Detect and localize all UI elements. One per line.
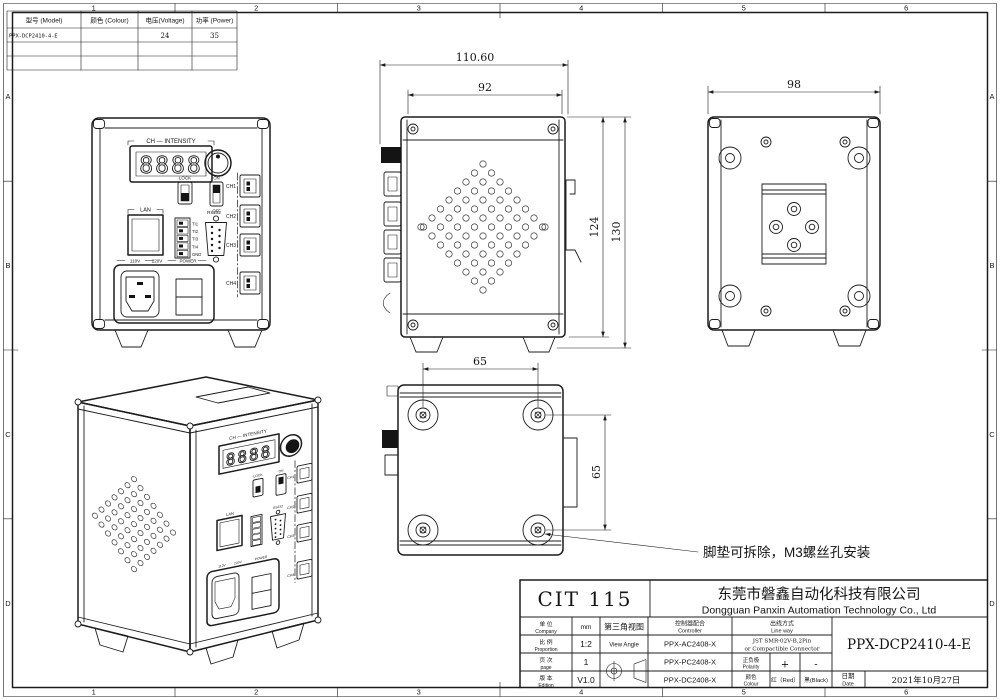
drawing-code: CIT 115 bbox=[537, 587, 632, 611]
colour-label-en: Colour bbox=[744, 682, 759, 688]
dimension-65-y: 65 bbox=[546, 415, 611, 530]
page-label-cn: 页 次 bbox=[539, 656, 552, 664]
edition-label-cn: 版 本 bbox=[539, 674, 552, 682]
zone-label: 6 bbox=[904, 4, 908, 13]
intensity-display: CH — INTENSITY 8888 bbox=[128, 139, 214, 182]
iso-ch3-label: CH3 bbox=[287, 534, 294, 539]
terminal-block: TI1 TI2 TI3 TI4 GND bbox=[175, 218, 201, 258]
lineway-label-cn: 出线方式 bbox=[770, 620, 794, 628]
rs232-label: RS232 bbox=[207, 210, 221, 215]
dim-130-label: 130 bbox=[610, 222, 623, 243]
controller-label-en: Controller bbox=[678, 629, 702, 635]
page-label-en: page bbox=[540, 665, 551, 671]
company-name-en: Dongguan Panxin Automation Technology Co… bbox=[702, 605, 937, 617]
side-view: 92 110.60 124 130 bbox=[380, 51, 631, 352]
iso-ch1-label: CH1 bbox=[287, 475, 294, 480]
title-block: CIT 115 东莞市磐鑫自动化科技有限公司 Dongguan Panxin A… bbox=[520, 580, 988, 689]
zone-label: 3 bbox=[417, 688, 421, 697]
zone-label: A bbox=[5, 92, 10, 101]
side-connectors bbox=[381, 147, 401, 313]
controller-model: PPX-PC2408-X bbox=[664, 658, 716, 667]
iso-display-digits: 8888 bbox=[226, 441, 273, 469]
ch2-label: CH2 bbox=[226, 214, 236, 220]
zone-label: 2 bbox=[254, 4, 258, 13]
zone-label: A bbox=[989, 92, 994, 101]
power-switch bbox=[176, 279, 202, 315]
terminal-label: TI4 bbox=[192, 244, 199, 249]
view-angle-cn: 第三角视图 bbox=[604, 622, 644, 632]
dim-65x-label: 65 bbox=[473, 355, 487, 368]
scale-label-cn: 比 例 bbox=[539, 638, 552, 646]
iso-display-title: CH — INTENSITY bbox=[229, 428, 267, 441]
date-label-cn: 日期 bbox=[842, 672, 856, 680]
power-connector-side bbox=[381, 147, 401, 163]
dim-110-label: 110.60 bbox=[456, 51, 495, 64]
polarity-plus: + bbox=[781, 660, 789, 671]
zone-label: 4 bbox=[579, 688, 583, 697]
edition-value: V1.0 bbox=[577, 675, 595, 685]
spec-value-model: PPX-DCP2410-4-E bbox=[9, 34, 58, 40]
polarity-label-en: Polarity bbox=[743, 665, 760, 671]
view-angle-en: View Angle bbox=[609, 643, 639, 649]
dimension-92: 92 bbox=[408, 81, 562, 114]
colour-label-cn: 颜色 bbox=[745, 673, 757, 681]
display-title: CH — INTENSITY bbox=[146, 139, 195, 145]
spec-table: 型号 (Model) 颜色 (Colour) 电压(Voltage) 功率 (P… bbox=[7, 11, 237, 70]
din-mount-plate bbox=[762, 184, 826, 264]
spec-value-voltage: 24 bbox=[161, 32, 170, 40]
channel-connectors: CH1 CH2 CH3 CH4 bbox=[226, 175, 260, 294]
lan-port: LAN bbox=[128, 208, 163, 256]
iso-lan-label: LAN bbox=[226, 511, 234, 518]
lock-switch: LOCK bbox=[178, 176, 192, 205]
colour-red: 红（Red） bbox=[771, 676, 799, 684]
lan-label: LAN bbox=[140, 208, 151, 214]
dim-124-label: 124 bbox=[588, 217, 601, 238]
lineway-value-1: JST SMR-02V-B,2Pin bbox=[752, 639, 812, 645]
dimension-65-x: 65 bbox=[423, 355, 538, 407]
zone-label: 5 bbox=[742, 688, 746, 697]
iso-ch2-label: CH2 bbox=[287, 505, 294, 510]
power-connector-bottom bbox=[382, 430, 398, 448]
zone-label: B bbox=[989, 261, 994, 270]
zone-label: 1 bbox=[92, 688, 96, 697]
v220-label: 220V bbox=[152, 259, 163, 264]
rs232-port: RS232 bbox=[206, 210, 227, 262]
iso-on-label: ON bbox=[279, 468, 284, 473]
lineway-value-2: or Compactible Connector bbox=[745, 647, 820, 653]
controller-model: PPX-AC2408-X bbox=[664, 640, 716, 649]
zone-label: 6 bbox=[904, 688, 908, 697]
engineering-drawing: 1 2 3 4 5 6 1 2 3 4 5 6 A B C D A B C D … bbox=[0, 0, 1000, 700]
iso-ch4-label: CH4 bbox=[287, 573, 294, 578]
polarity-minus: - bbox=[814, 660, 817, 671]
page-value: 1 bbox=[584, 657, 589, 667]
polarity-label-cn: 正负极 bbox=[743, 656, 760, 664]
scale-label-en: Proportion bbox=[534, 647, 557, 653]
terminal-label: TI2 bbox=[192, 229, 199, 234]
controller-label-cn: 控制器配合 bbox=[675, 620, 705, 628]
edition-label-en: Edition bbox=[538, 683, 554, 689]
iso-rs232-label: RS232 bbox=[273, 504, 283, 510]
spec-header-voltage: 电压(Voltage) bbox=[145, 16, 184, 25]
spec-header-model: 型号 (Model) bbox=[26, 16, 63, 25]
dim-92-label: 92 bbox=[478, 81, 492, 94]
front-view: CH — INTENSITY 8888 LOCK ON OFF CH1 CH2 … bbox=[92, 118, 270, 347]
terminal-label: TI3 bbox=[192, 237, 199, 242]
lock-label: LOCK bbox=[179, 176, 191, 181]
zone-label: 3 bbox=[417, 4, 421, 13]
zone-label: D bbox=[989, 599, 995, 608]
drawing-sheet: 1 2 3 4 5 6 1 2 3 4 5 6 A B C D A B C D … bbox=[0, 0, 1000, 700]
dimension-98: 98 bbox=[708, 78, 880, 114]
zone-label: D bbox=[5, 599, 11, 608]
iso-vent-holes bbox=[92, 468, 175, 581]
feet-annotation: 脚垫可拆除，M3螺丝孔安装 bbox=[703, 545, 870, 560]
lineway-label-en: Line way bbox=[771, 629, 793, 635]
ch1-label: CH1 bbox=[226, 184, 236, 190]
spec-value-power: 35 bbox=[210, 32, 219, 40]
iso-lock-label: LOCK bbox=[253, 473, 263, 479]
iso-view: CH — INTENSITY 8888 LOCK ON CH1 CH2 CH3 … bbox=[75, 377, 321, 664]
scale-value: 1:2 bbox=[580, 639, 592, 649]
v110-label: 110V bbox=[130, 259, 140, 264]
date-value: 2021年10月27日 bbox=[892, 675, 961, 686]
zone-label: C bbox=[5, 430, 11, 439]
zone-label: C bbox=[989, 430, 995, 439]
vent-holes bbox=[420, 161, 545, 293]
controller-model: PPX-DC2408-X bbox=[664, 676, 717, 685]
ch4-label: CH4 bbox=[226, 281, 236, 287]
terminal-label: GND bbox=[192, 252, 201, 257]
company-name-cn: 东莞市磐鑫自动化科技有限公司 bbox=[718, 585, 921, 603]
iso-v110-label: 110V bbox=[218, 563, 226, 569]
rear-view: 98 bbox=[708, 78, 880, 346]
zone-label: B bbox=[5, 261, 10, 270]
zone-label: 4 bbox=[579, 4, 583, 13]
zone-label: 5 bbox=[742, 4, 746, 13]
unit-value: mm bbox=[581, 624, 592, 631]
part-number: PPX-DCP2410-4-E bbox=[847, 637, 971, 653]
power-label: POWER bbox=[179, 259, 197, 264]
dim-65y-label: 65 bbox=[590, 465, 603, 479]
ch3-label: CH3 bbox=[226, 243, 236, 249]
spec-header-colour: 颜色 (Colour) bbox=[90, 16, 128, 25]
colour-black: 黑(Black) bbox=[804, 677, 828, 684]
unit-label-cn: 单 位 bbox=[539, 620, 552, 628]
terminal-label: TI1 bbox=[192, 222, 199, 227]
iso-v220-label: 220V bbox=[234, 560, 242, 566]
rubber-feet bbox=[408, 400, 553, 545]
din-rail-clip bbox=[566, 180, 581, 262]
spec-header-power: 功率 (Power) bbox=[196, 16, 234, 25]
display-digits: 8888 bbox=[139, 153, 202, 179]
power-module: 110V 220V POWER bbox=[114, 259, 214, 324]
intensity-knob bbox=[205, 150, 231, 176]
date-label-en: Date bbox=[842, 682, 854, 688]
on-label: ON bbox=[213, 176, 219, 181]
dim-98-label: 98 bbox=[787, 78, 801, 91]
bottom-view: 65 65 bbox=[382, 355, 698, 555]
zone-label: 2 bbox=[254, 688, 258, 697]
unit-label-en: Company bbox=[535, 629, 557, 635]
iso-front-face: CH — INTENSITY 8888 LOCK ON CH1 CH2 CH3 … bbox=[207, 419, 312, 626]
